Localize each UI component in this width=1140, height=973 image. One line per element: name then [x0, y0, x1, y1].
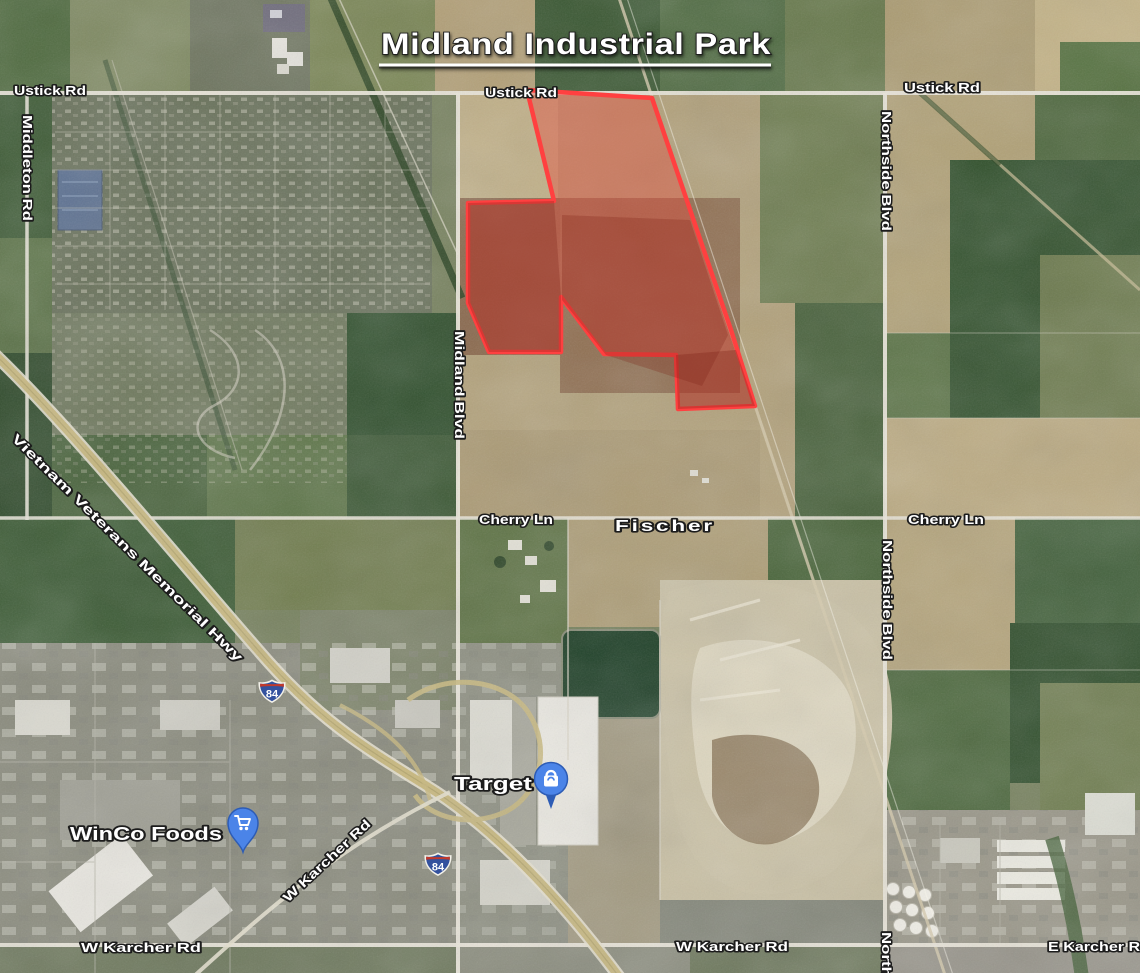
label-target[interactable]: Target: [454, 774, 532, 794]
label-middleton-rd: Middleton Rd: [20, 115, 35, 221]
label-northside-blvd-top: Northside Blvd: [879, 111, 894, 231]
label-w-karcher-rd-left: W Karcher Rd: [81, 940, 201, 955]
label-cherry-ln-right: Cherry Ln: [908, 512, 984, 527]
label-e-karcher-rd: E Karcher Rd: [1048, 939, 1140, 954]
label-ustick-rd-center: Ustick Rd: [485, 85, 557, 100]
label-ustick-rd-right: Ustick Rd: [904, 80, 980, 95]
satellite-map: 84: [0, 0, 1140, 973]
map-title: Midland Industrial Park: [379, 28, 771, 66]
label-midland-blvd: Midland Blvd: [452, 331, 467, 439]
label-cherry-ln-left: Cherry Ln: [479, 512, 553, 527]
label-northside-blvd-bottom: Northside Blvd: [879, 932, 894, 973]
label-ustick-rd-left: Ustick Rd: [14, 83, 86, 98]
label-locality-fischer: Fischer: [615, 518, 715, 535]
label-northside-blvd-mid: Northside Blvd: [880, 540, 895, 660]
label-w-karcher-rd-center: W Karcher Rd: [676, 939, 788, 954]
title-text: Midland Industrial Park: [381, 28, 771, 61]
parcel-dark-field-west: [468, 201, 561, 352]
label-winco-foods[interactable]: WinCo Foods: [70, 824, 222, 844]
